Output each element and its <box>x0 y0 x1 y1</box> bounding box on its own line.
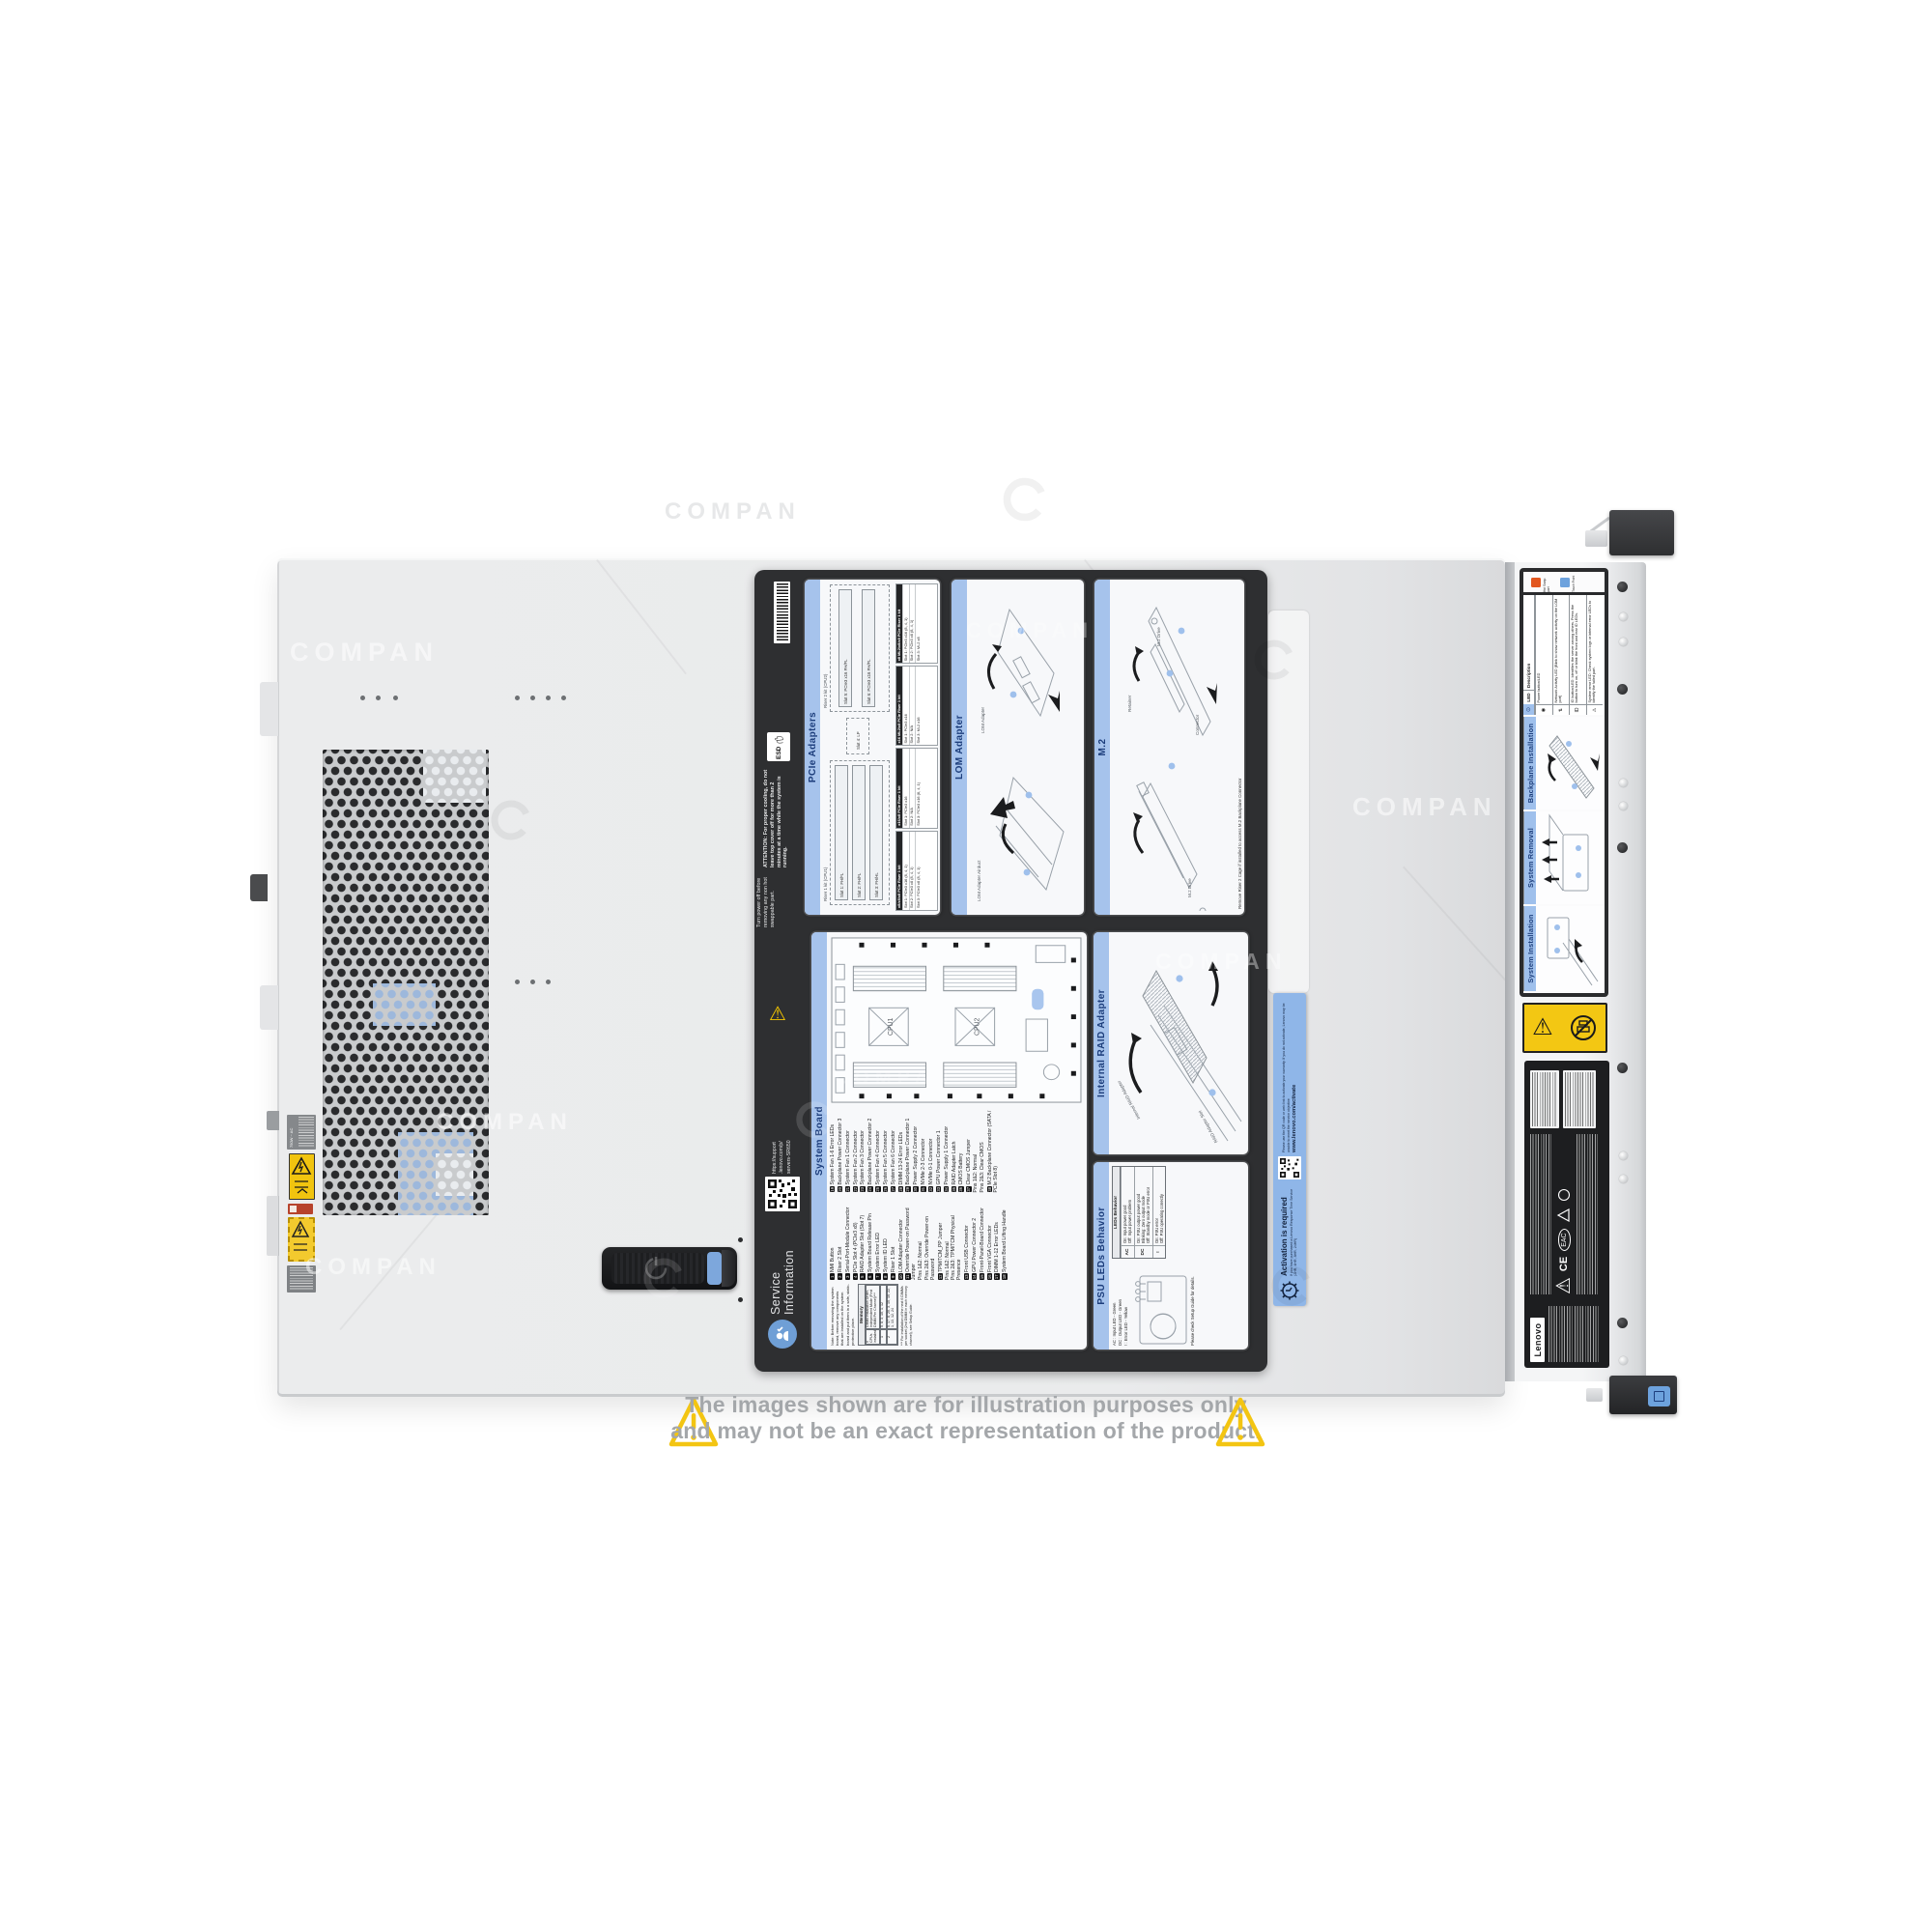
legend-text: CMOS Battery <box>958 1153 964 1185</box>
legend-number: 2 <box>838 1274 842 1281</box>
support-qr-block: https://support .lenovo.com/p/ servers-S… <box>761 1132 804 1211</box>
legend-number: 1 <box>830 1274 835 1281</box>
leds-behavior-row: AC On: Input power good Off: Input power… <box>1121 1167 1134 1258</box>
chassis-pin <box>250 874 268 901</box>
legend-number: 28 <box>898 1186 903 1193</box>
legend-item: 13Front USB Connector <box>964 1196 971 1281</box>
warning-triangle-icon: ⚠ <box>769 1005 786 1024</box>
leds-behavior-row: DC On: PSU output power good Blinking: Z… <box>1134 1167 1152 1258</box>
legend-item: 26System Fan 5 Connector <box>883 1108 890 1193</box>
legend-text: Pins 1&2: Normal <box>973 1154 979 1193</box>
regulatory-sublabels <box>1530 1066 1604 1128</box>
legend-text: RAID Adapter Latch <box>952 1141 957 1184</box>
screw-hole <box>1619 1175 1628 1183</box>
latch-tab <box>1586 1388 1603 1402</box>
lom-airduct-sketch-icon <box>971 749 1079 911</box>
legend-text: Backplane Power Connector 2 <box>867 1119 873 1185</box>
chassis-ear-tab <box>260 985 279 1030</box>
led-description: System error LED: Check system logs or i… <box>1587 595 1604 704</box>
legend-number: 23 <box>860 1186 865 1193</box>
legend-text: Riser 1 Slot <box>891 1247 896 1272</box>
riser-table: x16 ML2/x8 PCIe Riser 1 kit Slot 1: PCIe… <box>895 666 938 746</box>
memory-table-title: Memory <box>859 1285 866 1345</box>
card-pcie-adapters: PCIe Adapters Riser 1 kit (CPU1) Slot 1:… <box>805 580 940 915</box>
chassis-ear-tab <box>260 682 279 736</box>
legend-text: PCIe Slot 4 (PCIe3 x8) <box>853 1222 859 1272</box>
legend-item: 37Clear CMOS Jumper <box>966 1108 973 1193</box>
touch-point-color-icon <box>1560 578 1570 587</box>
legend-text: RAID Adapter Slot (Slot 7) <box>860 1215 866 1272</box>
watermark-ring <box>641 1256 686 1300</box>
legend-item: 18System Board Lifting Handle <box>1002 1196 1009 1281</box>
legend-text: System Fan 2 Connector <box>853 1130 859 1184</box>
section-title: Backplane Installation <box>1524 717 1536 810</box>
recycle-icon <box>1556 1207 1572 1223</box>
legend-number: 7 <box>875 1274 880 1281</box>
watermark-ring <box>489 798 533 842</box>
mounting-rail <box>1611 562 1646 1381</box>
vent-patch-blue <box>373 983 436 1026</box>
screw-dot <box>546 980 551 984</box>
service-information-block: Service Information <box>763 1233 802 1349</box>
leds-behavior-title: LEDs Behavior <box>1113 1167 1121 1258</box>
service-info-icon <box>768 1320 797 1349</box>
warning-triangle-icon: ⚠ <box>1554 1277 1574 1294</box>
memory-footnote: *** For installation of the next 6 DIMMs… <box>900 1284 913 1346</box>
legend-number: 25 <box>875 1186 880 1193</box>
micro-text-lines <box>1532 1072 1557 1126</box>
led-glyph-icon: ◉ <box>1536 704 1552 715</box>
legend-number: 30 <box>913 1186 918 1193</box>
led-name: AC <box>1122 1245 1134 1258</box>
card-m2: M.2 M.2 Drive Retainer Connector M.2 Dri… <box>1094 580 1244 915</box>
activation-body-block: Please use the QR code or web link to ac… <box>1282 998 1296 1152</box>
legend-item: 17DIMM 1-12 Error LEDs <box>994 1196 1001 1281</box>
riser-table: x16/x8 PCIe Riser 1 kit Slot 1: PCIe3 x1… <box>895 749 938 829</box>
leds-behavior-table: LEDs Behavior AC On: Input power good Of… <box>1112 1166 1166 1259</box>
riser1-box: Slot 1: FH/FL Slot 2: FH/FL Slot 3: FH/H… <box>830 760 890 905</box>
top-latch <box>1609 510 1674 555</box>
micro-text-lines <box>1565 1072 1594 1126</box>
regulatory-sublabel <box>1563 1070 1596 1128</box>
legend-item: 35RAID Adapter Latch <box>952 1108 958 1193</box>
power-off-text: Turn power off before removing any non h… <box>756 864 777 927</box>
riser-table-row: Slot 3: PCIe3 x16 (8, 4, 1) <box>915 750 921 828</box>
vent-patch-light <box>436 1153 473 1196</box>
barcode-label <box>774 582 790 643</box>
legend-number: 8 <box>883 1274 888 1281</box>
lom-adapter-label: LOM Adapter <box>980 707 985 733</box>
lom-airduct-label: LOM Adapter Airduct <box>977 861 981 901</box>
m2-label: Connector <box>1195 715 1200 735</box>
legend-text: Pins 2&3: Clear CMOS <box>980 1142 985 1192</box>
psu-rating-label: 750W ~ AC <box>287 1115 316 1150</box>
screw-dot <box>530 980 535 984</box>
lenovo-logo-text: Lenovo <box>1533 1323 1543 1357</box>
led-table-rows: ◉ Power button/LED ⇅ Network Activity LE… <box>1535 595 1603 715</box>
hot-swap-color-icon <box>1531 578 1541 587</box>
card-title: Internal RAID Adapter <box>1094 932 1109 1154</box>
m2-note: Remove Riser 2 Cage if installed to acce… <box>1237 585 1242 909</box>
raid-sketch-icon <box>1112 936 1244 1151</box>
activation-title: Activation is required <box>1281 1183 1289 1276</box>
micro-text-lines <box>290 1267 313 1291</box>
riser-tables: x8/x8/x8 PCIe Riser 1 kit Slot 1: PCIe3 … <box>895 583 938 911</box>
m2-sketch-icon <box>1114 583 1228 911</box>
screw-dot <box>360 696 365 700</box>
memory-col-header: # CPUs installed <box>866 1329 880 1345</box>
legend-item: 5RAID Adapter Slot (Slot 7) <box>860 1196 867 1281</box>
section-system-installation: System Installation <box>1523 906 1605 991</box>
legend-item: 29Backplane Power Connector 1 <box>905 1108 912 1193</box>
legend-item: 8System ID LED <box>883 1196 890 1281</box>
legend-number: 19 <box>830 1186 835 1193</box>
legend-number: 36 <box>958 1186 963 1193</box>
led-description: Network Activity LED (Blink to show netw… <box>1553 595 1570 704</box>
screw-head <box>1617 1318 1628 1328</box>
support-url-line: https://support <box>772 1140 779 1174</box>
psu-led-labels: AC : Input LED - GreenDC : Output LED - … <box>1112 1263 1130 1346</box>
legend-number: 33 <box>936 1186 941 1193</box>
card-title: PSU LEDs Behavior <box>1094 1162 1109 1350</box>
led-table-row: ⇅ Network Activity LED (Blink to show ne… <box>1552 595 1570 715</box>
riser-table: x8 ML2/x8/x8 PCIe Riser 1 kit Slot 1: PC… <box>895 583 938 664</box>
psu-rating-text: 750W ~ AC <box>289 1117 294 1148</box>
screw-dot <box>738 1237 743 1242</box>
legend-number: 4 <box>853 1274 858 1281</box>
legend-text: Clear CMOS Jumper <box>966 1139 972 1184</box>
leds-behavior-row: ! On: PSU error Off: PSU operating corre… <box>1152 1167 1166 1258</box>
legend-text: System Board Lifting Handle <box>1002 1209 1008 1272</box>
card-title: LOM Adapter <box>952 580 967 915</box>
micro-text-lines <box>298 1117 314 1148</box>
led-description: Power button/LED <box>1536 595 1552 704</box>
legend-number: 38 <box>987 1186 992 1193</box>
riser-table: x8/x8/x8 PCIe Riser 1 kit Slot 1: PCIe3 … <box>895 831 938 911</box>
legend-text: System Fan 1 Connector <box>845 1130 851 1184</box>
legend-text: System Error LED <box>875 1233 881 1272</box>
legend-number: 17 <box>994 1274 999 1281</box>
legend-item: 2Riser 2 Slot <box>838 1196 844 1281</box>
slot-label: Slot 6: PCIe3 x16 FH/FL <box>867 659 871 704</box>
front-touch-point-label <box>1648 1386 1670 1406</box>
label-glyph <box>290 1206 297 1212</box>
legend-number: 29 <box>905 1186 910 1193</box>
memory-col-header: DIMM Installation Order-Independent Mode… <box>866 1285 880 1329</box>
cpu2-label: CPU2 <box>974 1018 980 1036</box>
legend-number: 31 <box>921 1186 925 1193</box>
vent-patch-light <box>423 750 486 803</box>
chassis-stub <box>267 1196 279 1256</box>
screw-hole <box>1619 612 1628 621</box>
screw-head <box>1617 1063 1628 1073</box>
riser2-label: Riser 2 kit (CPU2) <box>823 674 828 708</box>
legend-number: 15 <box>980 1274 984 1281</box>
legend-item: 30Power Supply 2 Connector <box>913 1108 920 1193</box>
screw-dot <box>515 696 520 700</box>
legend-number: 5 <box>860 1274 865 1281</box>
legend-item: 9Riser 1 Slot <box>891 1196 897 1281</box>
activation-intro: If you have purchased a Lenovo Response … <box>1290 1183 1298 1276</box>
activation-label: Activation is required If you have purch… <box>1273 993 1306 1306</box>
legend-item: 20Backplane Power Connector 3 <box>838 1108 844 1193</box>
backplane-sketch-icon <box>1536 717 1604 810</box>
board-diagram: CPU1 CPU2 <box>830 936 1083 1104</box>
support-url-line: servers-SR650 <box>786 1140 793 1174</box>
legend-text: GPU Power Connector 2 <box>972 1218 978 1272</box>
led-description: ID button/LED: Identifies the server amo… <box>1570 595 1586 704</box>
legend-text: Front USB Connector <box>964 1225 970 1272</box>
latch-tab <box>1585 530 1607 547</box>
legend-number: 21 <box>845 1186 850 1193</box>
legend-text: NVMe 0-1 Connector <box>928 1139 934 1185</box>
cover-crease <box>339 1196 452 1330</box>
legend-number: 16 <box>987 1274 992 1281</box>
memory-order: 5, 17, 8, 20, 3, 15, 10, 22, 1, 13, 12, … <box>887 1285 897 1329</box>
legend-text: Pins 1&2: Normal <box>945 1241 951 1280</box>
section-backplane-installation: Backplane Installation <box>1523 717 1605 810</box>
legend-text: NMI Button <box>830 1248 836 1272</box>
legend-item: Pins 2&3: Override Power-on Password <box>925 1196 937 1281</box>
legend-item: Pins 2&3: TPM/TCM Physical Presence <box>952 1196 963 1281</box>
screw-dot <box>530 696 535 700</box>
service-title-line: Service <box>769 1250 782 1315</box>
watermark-ring <box>1269 1264 1314 1308</box>
legend-text: M.2 Backplane Connector (SATA / PCIe Slo… <box>987 1111 999 1193</box>
legend-number: 37 <box>966 1186 971 1193</box>
system-board-note: Note: Before removing the system board, … <box>830 1284 855 1346</box>
regulatory-label: Lenovo ⚠ CE EAC <box>1524 1061 1609 1368</box>
screw-head <box>1617 842 1628 853</box>
legend-number: 20 <box>838 1186 842 1193</box>
lom-adapter-sketch-icon <box>971 582 1079 745</box>
legend-item: 25System Fan 4 Connector <box>875 1108 882 1193</box>
eac-mark: EAC <box>1558 1229 1571 1250</box>
psu-caution-label <box>288 1217 315 1262</box>
legend-item: 3Serial-Port-Module Connector <box>845 1196 852 1281</box>
support-url: https://support .lenovo.com/p/ servers-S… <box>772 1140 792 1174</box>
legend-text: DIMM 13-24 Error LEDs <box>898 1132 904 1185</box>
legend-item: 31NVMe 2-3 Connector <box>921 1108 927 1193</box>
hot-swap-item: Hot Swap part <box>1531 573 1550 592</box>
description-header-cell: Description <box>1523 595 1534 690</box>
warning-triangle-icon: ⚠ <box>1532 1016 1553 1039</box>
screw-hole <box>1619 638 1628 646</box>
hazard-glyphs-icon <box>290 1154 314 1199</box>
led-glyph-icon: ⇅ <box>1553 704 1570 715</box>
hot-swap-text: Hot Swap part <box>1543 573 1550 592</box>
memory-cpus: 2 <box>887 1329 897 1345</box>
power-off-warning: Turn power off before removing any non h… <box>756 864 782 927</box>
attention-text: ATTENTION: For proper cooling, do not le… <box>763 769 789 867</box>
legend-text: DIMM 1-12 Error LEDs <box>994 1222 1000 1272</box>
screw-head <box>1617 582 1628 592</box>
screw-dot <box>393 696 398 700</box>
legend-item: 21System Fan 1 Connector <box>845 1108 852 1193</box>
screw-head <box>1617 684 1628 695</box>
cover-crease <box>596 559 687 674</box>
screw-dot <box>546 696 551 700</box>
watermark-ring <box>794 1099 835 1140</box>
slot-label: Slot 4: LP <box>856 731 861 750</box>
legend-number: 26 <box>883 1186 888 1193</box>
legend-text: Override Power-on Password Jumper <box>905 1207 917 1280</box>
legend-text: System ID LED <box>883 1238 889 1272</box>
micro-text-lines <box>1548 1306 1599 1362</box>
micro-text-lines <box>1577 1134 1598 1294</box>
activation-qr-code <box>1278 1156 1301 1179</box>
legend-item: 7System Error LED <box>875 1196 882 1281</box>
screw-hole <box>1619 779 1628 787</box>
touch-point-text: Touch Point <box>1572 573 1576 592</box>
regulatory-sublabel <box>1530 1070 1559 1128</box>
touch-point-item: Touch Point <box>1560 573 1576 592</box>
memory-order: 5, 8, 3, 10, 1, 12 <box>880 1285 887 1329</box>
cert-marks-row: ⚠ CE EAC <box>1554 1134 1574 1294</box>
legend-number: 11 <box>905 1274 910 1281</box>
regulatory-marks-block: ⚠ CE EAC <box>1530 1134 1604 1294</box>
service-information-title: Service Information <box>769 1250 796 1315</box>
screw-dot <box>376 696 381 700</box>
legend-number: 22 <box>853 1186 858 1193</box>
legend-number: 14 <box>972 1274 977 1281</box>
leds-behavior-rows: AC On: Input power good Off: Input power… <box>1121 1167 1165 1258</box>
legend-item: 4PCIe Slot 4 (PCIe3 x8) <box>853 1196 860 1281</box>
screw-hole <box>1619 1356 1628 1365</box>
watermark-ring <box>1252 638 1296 682</box>
lenovo-logo: Lenovo <box>1530 1318 1545 1362</box>
activation-title-block: Activation is required If you have purch… <box>1281 1183 1297 1276</box>
legend-item: 34Power Supply 1 Connector <box>944 1108 951 1193</box>
legend-item: Pins 2&3: Clear CMOS <box>980 1108 986 1193</box>
hot-swap-legend: Hot Swap part Touch Point <box>1523 572 1605 595</box>
legend-item: 36CMOS Battery <box>958 1108 965 1193</box>
touch-point-glyph <box>1654 1391 1664 1402</box>
latch-end <box>722 1250 735 1287</box>
legend-text: Serial-Port-Module Connector <box>845 1207 851 1272</box>
legend-item: 14GPU Power Connector 2 <box>972 1196 979 1281</box>
barcode-icon <box>777 583 788 641</box>
led-table-row: ⚠ System error LED: Check system logs or… <box>1586 595 1604 715</box>
legend-number: 24 <box>867 1186 872 1193</box>
legend-text: LOM Adapter Connector <box>898 1219 904 1272</box>
card-psu-leds: PSU LEDs Behavior AC : Input LED - Green… <box>1094 1162 1248 1350</box>
memory-row: 2 5, 17, 8, 20, 3, 15, 10, 22, 1, 13, 12… <box>887 1285 897 1345</box>
no-stacking-icon <box>1569 1013 1598 1042</box>
slot-label: Slot 5: PCIe3 x16 FH/FL <box>843 659 848 704</box>
slot4-box: Slot 4: LP <box>846 718 869 754</box>
legend-column: 1NMI Button2Riser 2 Slot3Serial-Port-Mod… <box>830 1196 1083 1281</box>
support-url-line: .lenovo.com/p/ <box>779 1140 785 1174</box>
led-table-header: ⊙ LED Description <box>1523 595 1535 715</box>
legend-text: Front-Panel-Board Connector <box>980 1207 985 1272</box>
psu-led-callouts: AC : Input LED - GreenDC : Output LED - … <box>1112 1263 1245 1346</box>
no-stacking-label: ⚠ <box>1522 1003 1607 1053</box>
legend-item: 32NVMe 0-1 Connector <box>928 1108 935 1193</box>
psu-sketch-icon <box>1132 1274 1188 1346</box>
legend-item: 23System Fan 3 Connector <box>860 1108 867 1193</box>
slot-label: Slot 2: FH/FL <box>857 873 862 897</box>
riser1-label: Riser 1 kit (CPU1) <box>823 867 828 901</box>
legend-text: System Fan 6 Connector <box>891 1130 896 1184</box>
bottom-latch <box>1609 1376 1677 1414</box>
activation-body: Please use the QR code or web link to ac… <box>1282 998 1290 1152</box>
legend-number: 35 <box>952 1186 956 1193</box>
electrical-warning-label <box>289 1153 315 1200</box>
front-seam <box>1505 562 1515 1381</box>
legend-text: NVMe 2-3 Connector <box>921 1139 926 1185</box>
legend-item: 1NMI Button <box>830 1196 837 1281</box>
esd-label: ESD <box>767 732 790 761</box>
section-title: System Removal <box>1524 811 1536 904</box>
legend-number: 34 <box>944 1186 949 1193</box>
legend-text: Power Supply 2 Connector <box>913 1126 919 1185</box>
attention-note: ATTENTION: For proper cooling, do not le… <box>763 769 789 867</box>
led-name: DC <box>1135 1245 1152 1258</box>
legend-text: System Board Release Pin <box>867 1213 873 1272</box>
section-title: System Installation <box>1524 906 1536 991</box>
legend-text: Front VGA Connector <box>987 1225 993 1272</box>
m2-label: M.2 Drive <box>1187 878 1192 897</box>
legend-item: 22System Fan 2 Connector <box>853 1108 860 1193</box>
screw-hole <box>1619 1151 1628 1160</box>
legend-item: 11Override Power-on Password Jumper <box>905 1196 918 1281</box>
support-qr-code <box>765 1177 800 1211</box>
chassis-stub <box>267 1111 279 1130</box>
legend-item: 15Front-Panel-Board Connector <box>980 1196 986 1281</box>
system-board-notes: Note: Before removing the system board, … <box>830 1284 1083 1346</box>
card-title: PCIe Adapters <box>805 580 820 915</box>
legend-item: 16Front VGA Connector <box>987 1196 994 1281</box>
legend-text: Backplane Power Connector 1 <box>905 1119 911 1185</box>
slot-label: Slot 1: FH/FL <box>839 873 844 897</box>
board-diagram-icon: CPU1 CPU2 <box>830 936 1083 1104</box>
legend-number: 27 <box>891 1186 895 1193</box>
psu-check-note: Please check Setup Guide for details. <box>1190 1263 1195 1346</box>
card-title: M.2 <box>1094 580 1110 915</box>
screw-dot <box>515 980 520 984</box>
legend-item: 12TPM/TCM_PP Jumper <box>938 1196 945 1281</box>
memory-table: Memory # CPUs installed DIMM Installatio… <box>858 1284 898 1346</box>
memory-row: 1 5, 8, 3, 10, 1, 12 <box>880 1285 887 1345</box>
legend-item: 38M.2 Backplane Connector (SATA / PCIe S… <box>987 1108 1000 1193</box>
card-system-board: System Board Note: Before removing the s… <box>811 932 1087 1350</box>
card-title: System Board <box>811 932 827 1350</box>
m2-label: M.2 Drive <box>1156 627 1161 646</box>
activation-url: www.lenovo.com/activate <box>1292 998 1297 1152</box>
ce-mark: CE <box>1558 1257 1570 1271</box>
screw-hole <box>1619 802 1628 810</box>
legend-number: 13 <box>964 1274 969 1281</box>
slot-label: Slot 3: FH/HL <box>874 872 879 897</box>
legend-text: Pins 2&3: Override Power-on Password <box>924 1216 936 1280</box>
regulatory-brand-block: Lenovo <box>1530 1300 1604 1362</box>
legend-item: 27System Fan 6 Connector <box>891 1108 897 1193</box>
watermark-ring <box>1001 475 1049 524</box>
m2-label: Retainer <box>1127 696 1132 712</box>
led-table-row: ◉ Power button/LED <box>1535 595 1552 715</box>
micro-text-lines <box>1530 1134 1551 1294</box>
hazard-glyphs-icon <box>290 1219 311 1258</box>
system-removal-sketch-icon <box>1536 811 1604 904</box>
legend-text: Pins 1&2: Normal <box>918 1241 923 1280</box>
led-behavior: On: PSU error Off: PSU operating correct… <box>1153 1167 1166 1245</box>
legend-text: System Fan 5 Connector <box>883 1130 889 1184</box>
led-glyph-icon: ⚠ <box>1587 704 1604 715</box>
legend-text: Pins 2&3: TPM/TCM Physical Presence <box>951 1215 962 1280</box>
legend-number: 12 <box>938 1274 943 1281</box>
led-glyph-icon: ID <box>1570 704 1586 715</box>
